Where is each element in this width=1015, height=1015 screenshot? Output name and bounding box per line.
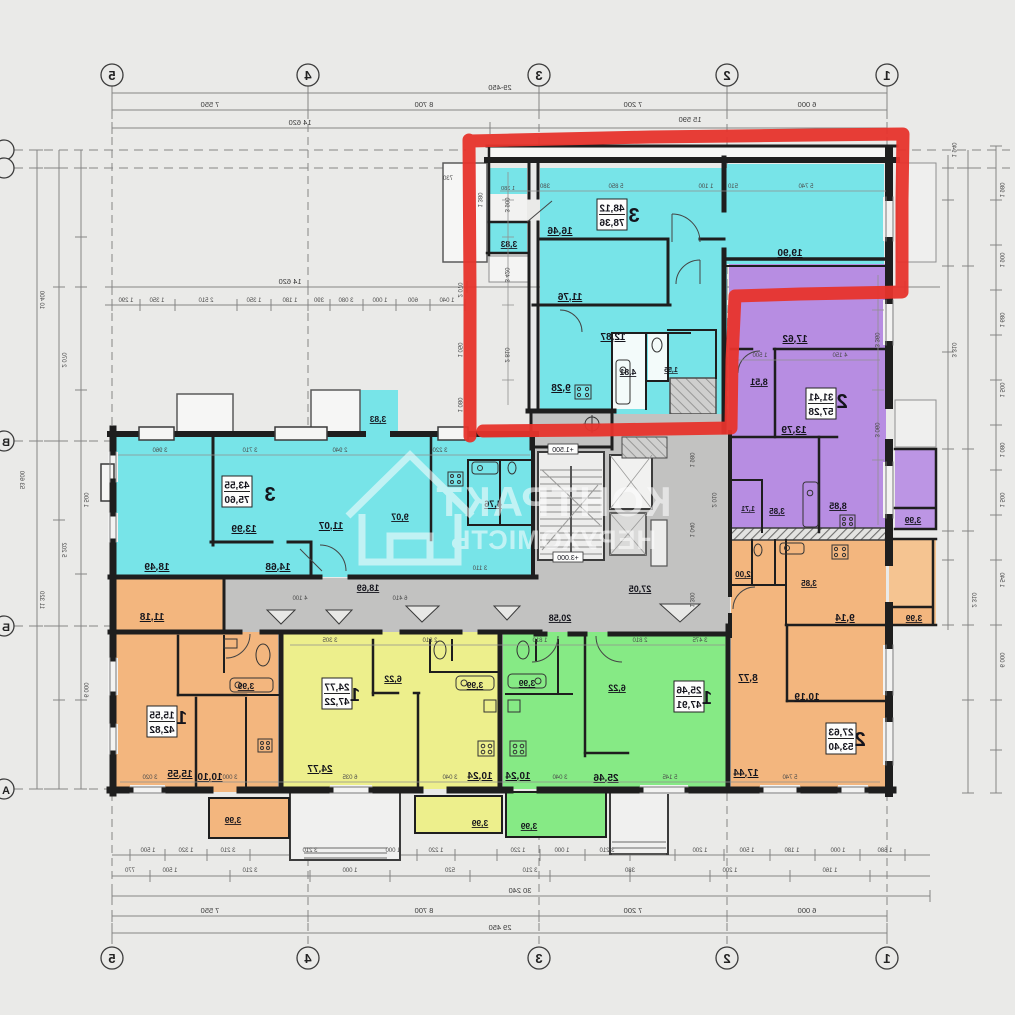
svg-text:2: 2 — [723, 68, 730, 83]
svg-text:10,24: 10,24 — [505, 771, 530, 782]
svg-text:11,76: 11,76 — [557, 292, 582, 303]
svg-text:1 180: 1 180 — [784, 848, 800, 854]
svg-text:11,07: 11,07 — [318, 521, 343, 532]
svg-text:3 000: 3 000 — [222, 775, 238, 781]
svg-text:1: 1 — [702, 688, 712, 708]
svg-text:3: 3 — [535, 68, 542, 83]
svg-text:3,83: 3,83 — [369, 414, 386, 424]
svg-text:9,14: 9,14 — [835, 613, 855, 624]
svg-text:3 310: 3 310 — [950, 342, 956, 358]
svg-text:1 980: 1 980 — [688, 452, 694, 468]
svg-text:3 040: 3 040 — [552, 775, 568, 781]
svg-text:1 320: 1 320 — [178, 848, 194, 854]
svg-text:1 160: 1 160 — [822, 868, 838, 874]
svg-text:6 410: 6 410 — [392, 596, 408, 602]
svg-text:1 680: 1 680 — [998, 312, 1004, 328]
svg-text:48,12: 48,12 — [599, 204, 624, 215]
svg-text:5 145: 5 145 — [662, 775, 678, 781]
svg-text:3 110: 3 110 — [472, 566, 487, 572]
svg-text:510: 510 — [727, 184, 738, 190]
svg-text:14 620: 14 620 — [289, 118, 312, 127]
svg-text:3,99: 3,99 — [518, 678, 535, 688]
svg-text:24,77: 24,77 — [324, 683, 349, 694]
svg-text:1: 1 — [350, 685, 360, 705]
svg-text:3: 3 — [628, 205, 639, 227]
svg-text:1 500: 1 500 — [752, 353, 768, 359]
svg-text:1: 1 — [177, 708, 187, 728]
svg-text:3,99: 3,99 — [466, 680, 483, 690]
svg-text:8 700: 8 700 — [415, 100, 434, 109]
svg-text:42,82: 42,82 — [149, 725, 174, 736]
svg-text:1 350: 1 350 — [149, 298, 165, 304]
svg-text:Б: Б — [2, 622, 10, 634]
svg-text:3 210: 3 210 — [242, 868, 258, 874]
svg-text:3 305: 3 305 — [322, 638, 338, 644]
svg-text:15,55: 15,55 — [167, 769, 192, 780]
svg-text:18,69: 18,69 — [357, 583, 380, 593]
svg-text:3,85: 3,85 — [801, 579, 817, 588]
svg-text:В: В — [2, 437, 10, 449]
svg-text:75,60: 75,60 — [224, 495, 249, 506]
svg-text:1 300: 1 300 — [688, 592, 694, 608]
svg-text:6,22: 6,22 — [384, 674, 402, 684]
svg-text:2 010: 2 010 — [710, 492, 716, 508]
svg-text:3 710: 3 710 — [242, 448, 258, 454]
svg-text:1 040: 1 040 — [439, 298, 455, 304]
svg-text:2 510: 2 510 — [198, 298, 214, 304]
svg-text:8,85: 8,85 — [829, 501, 847, 511]
svg-text:3: 3 — [535, 951, 542, 966]
svg-text:10 400: 10 400 — [38, 290, 44, 309]
svg-text:6 000: 6 000 — [82, 682, 88, 698]
svg-text:18,49: 18,49 — [144, 562, 169, 573]
svg-text:4,81: 4,81 — [619, 367, 636, 377]
svg-text:47,91: 47,91 — [676, 700, 701, 711]
svg-text:4: 4 — [304, 951, 312, 966]
svg-text:3,99: 3,99 — [905, 613, 922, 623]
svg-text:1 540: 1 540 — [998, 572, 1004, 588]
svg-text:78,36: 78,36 — [599, 218, 624, 229]
svg-text:14,68: 14,68 — [265, 562, 290, 573]
svg-text:8,77: 8,77 — [738, 673, 758, 684]
svg-text:1 100: 1 100 — [698, 184, 714, 190]
svg-text:520: 520 — [444, 868, 455, 874]
svg-text:8,51: 8,51 — [750, 377, 768, 387]
svg-text:+1.500: +1.500 — [552, 447, 574, 454]
svg-text:5: 5 — [108, 951, 115, 966]
svg-text:4 150: 4 150 — [832, 353, 848, 359]
svg-text:20,58: 20,58 — [549, 613, 572, 623]
svg-text:1 080: 1 080 — [998, 442, 1004, 458]
svg-text:730: 730 — [442, 176, 453, 182]
svg-text:1 810: 1 810 — [532, 638, 548, 644]
svg-text:3,83: 3,83 — [500, 239, 517, 249]
svg-text:2 810: 2 810 — [503, 347, 509, 363]
svg-text:6,22: 6,22 — [608, 683, 626, 693]
svg-text:31,41: 31,41 — [808, 393, 833, 404]
svg-text:1 000: 1 000 — [830, 848, 846, 854]
svg-text:53 600: 53 600 — [18, 470, 24, 489]
svg-text:1 200: 1 200 — [692, 848, 708, 854]
svg-text:3 900: 3 900 — [503, 197, 509, 213]
svg-text:390: 390 — [313, 298, 324, 304]
svg-text:17,62: 17,62 — [782, 334, 807, 345]
svg-text:8 700: 8 700 — [415, 906, 434, 915]
svg-text:29-450: 29-450 — [488, 83, 511, 92]
svg-text:1 040: 1 040 — [688, 522, 694, 538]
svg-text:2 810: 2 810 — [632, 638, 648, 644]
svg-text:3 420: 3 420 — [503, 267, 509, 283]
svg-text:380: 380 — [624, 868, 635, 874]
svg-text:1 000: 1 000 — [554, 848, 570, 854]
svg-text:15,55: 15,55 — [149, 711, 174, 722]
svg-text:6 000: 6 000 — [798, 906, 817, 915]
svg-text:1 000: 1 000 — [372, 298, 388, 304]
svg-text:5: 5 — [108, 68, 115, 83]
svg-text:1 500: 1 500 — [998, 382, 1004, 398]
svg-text:КОНТРАКТ: КОНТРАКТ — [434, 478, 671, 525]
svg-text:29 450: 29 450 — [489, 923, 512, 932]
svg-text:14 620: 14 620 — [279, 277, 302, 286]
svg-text:10,10: 10,10 — [197, 772, 222, 783]
svg-text:3 210: 3 210 — [220, 848, 236, 854]
svg-text:3 060: 3 060 — [873, 422, 879, 438]
svg-text:27,05: 27,05 — [629, 584, 652, 594]
svg-text:7 200: 7 200 — [624, 100, 643, 109]
svg-text:11 320: 11 320 — [38, 590, 44, 609]
svg-text:3 210: 3 210 — [522, 868, 538, 874]
svg-text:1 080: 1 080 — [456, 397, 462, 413]
svg-text:3,99: 3,99 — [520, 821, 537, 831]
svg-text:4: 4 — [304, 68, 312, 83]
svg-text:7 200: 7 200 — [624, 906, 643, 915]
svg-text:1 940: 1 940 — [950, 142, 956, 158]
svg-text:1 380: 1 380 — [476, 192, 482, 208]
svg-text:1 680: 1 680 — [877, 848, 893, 854]
svg-text:53,40: 53,40 — [828, 742, 853, 753]
svg-text:1 350: 1 350 — [246, 298, 262, 304]
svg-text:5 740: 5 740 — [798, 184, 814, 190]
svg-text:1 000: 1 000 — [342, 868, 358, 874]
svg-text:НЕРУХОМІСТЬ: НЕРУХОМІСТЬ — [450, 525, 656, 555]
svg-text:2,00: 2,00 — [735, 570, 751, 579]
svg-text:43,55: 43,55 — [224, 481, 249, 492]
svg-text:3,99: 3,99 — [471, 818, 488, 828]
svg-text:3 080: 3 080 — [338, 298, 354, 304]
svg-text:1: 1 — [883, 951, 890, 966]
svg-text:2 310: 2 310 — [970, 592, 976, 608]
svg-text:3 960: 3 960 — [152, 448, 168, 454]
svg-text:5 202: 5 202 — [60, 542, 66, 558]
svg-text:2: 2 — [836, 391, 847, 413]
svg-text:6 000: 6 000 — [998, 652, 1004, 668]
svg-text:А: А — [2, 785, 10, 797]
svg-text:25,46: 25,46 — [676, 686, 701, 697]
svg-text:3,99: 3,99 — [237, 681, 254, 691]
svg-text:1,55: 1,55 — [664, 367, 678, 374]
svg-text:10,24: 10,24 — [467, 771, 492, 782]
svg-text:7 550: 7 550 — [201, 906, 220, 915]
svg-text:7 550: 7 550 — [201, 100, 220, 109]
svg-text:3,85: 3,85 — [769, 507, 785, 516]
svg-text:2: 2 — [854, 729, 865, 751]
svg-text:27,63: 27,63 — [828, 728, 853, 739]
svg-text:6 000: 6 000 — [798, 100, 817, 109]
svg-text:1 200: 1 200 — [722, 868, 738, 874]
svg-text:1 290: 1 290 — [118, 298, 134, 304]
svg-text:3: 3 — [264, 484, 275, 506]
svg-text:1 900: 1 900 — [998, 252, 1004, 268]
svg-text:1,71: 1,71 — [741, 506, 755, 513]
svg-text:3,99: 3,99 — [904, 515, 921, 525]
svg-text:1 180: 1 180 — [282, 298, 298, 304]
svg-text:24,77: 24,77 — [307, 764, 332, 775]
svg-text:19,90: 19,90 — [777, 248, 802, 259]
svg-text:10,19: 10,19 — [794, 692, 819, 703]
svg-text:17,44: 17,44 — [733, 768, 758, 779]
svg-text:13,79: 13,79 — [781, 425, 806, 436]
svg-text:1: 1 — [883, 68, 890, 83]
svg-text:600: 600 — [407, 298, 418, 304]
svg-text:2 070: 2 070 — [60, 352, 66, 368]
svg-text:15 590: 15 590 — [679, 115, 702, 124]
svg-text:13,99: 13,99 — [231, 524, 256, 535]
svg-text:16,46: 16,46 — [547, 226, 572, 237]
svg-text:1 500: 1 500 — [162, 868, 178, 874]
svg-text:1 220: 1 220 — [428, 848, 444, 854]
svg-text:6 035: 6 035 — [342, 775, 358, 781]
svg-text:5 850: 5 850 — [608, 184, 624, 190]
svg-text:770: 770 — [124, 868, 135, 874]
svg-text:1 220: 1 220 — [510, 848, 526, 854]
svg-text:12,87: 12,87 — [600, 332, 625, 343]
svg-text:380: 380 — [539, 184, 550, 190]
svg-text:3 210: 3 210 — [599, 848, 615, 854]
svg-text:3 475: 3 475 — [692, 638, 708, 644]
svg-text:1 980: 1 980 — [998, 182, 1004, 198]
svg-text:1 000: 1 000 — [385, 848, 401, 854]
svg-text:9,07: 9,07 — [391, 512, 409, 522]
svg-text:+3.000: +3.000 — [557, 555, 579, 562]
svg-text:9,28: 9,28 — [551, 383, 571, 394]
svg-text:3 360: 3 360 — [873, 332, 879, 348]
svg-text:1 500: 1 500 — [140, 848, 156, 854]
svg-text:2: 2 — [723, 951, 730, 966]
svg-text:5 740: 5 740 — [782, 775, 798, 781]
svg-text:57,28: 57,28 — [808, 407, 833, 418]
svg-text:2 940: 2 940 — [332, 448, 348, 454]
svg-text:3 210: 3 210 — [302, 848, 318, 854]
svg-text:30 240: 30 240 — [509, 886, 532, 895]
svg-text:3,99: 3,99 — [224, 815, 241, 825]
svg-text:2 810: 2 810 — [422, 638, 438, 644]
svg-text:1 500: 1 500 — [82, 492, 88, 508]
svg-text:1 500: 1 500 — [998, 492, 1004, 508]
svg-text:47,22: 47,22 — [324, 697, 349, 708]
svg-text:1 500: 1 500 — [739, 848, 755, 854]
svg-text:2 070: 2 070 — [456, 282, 462, 298]
svg-text:3 020: 3 020 — [142, 775, 158, 781]
svg-text:11,18: 11,18 — [139, 612, 164, 623]
svg-text:3 040: 3 040 — [442, 775, 458, 781]
svg-text:3 220: 3 220 — [432, 448, 448, 454]
svg-text:1 050: 1 050 — [456, 342, 462, 358]
svg-text:4 100: 4 100 — [292, 596, 308, 602]
